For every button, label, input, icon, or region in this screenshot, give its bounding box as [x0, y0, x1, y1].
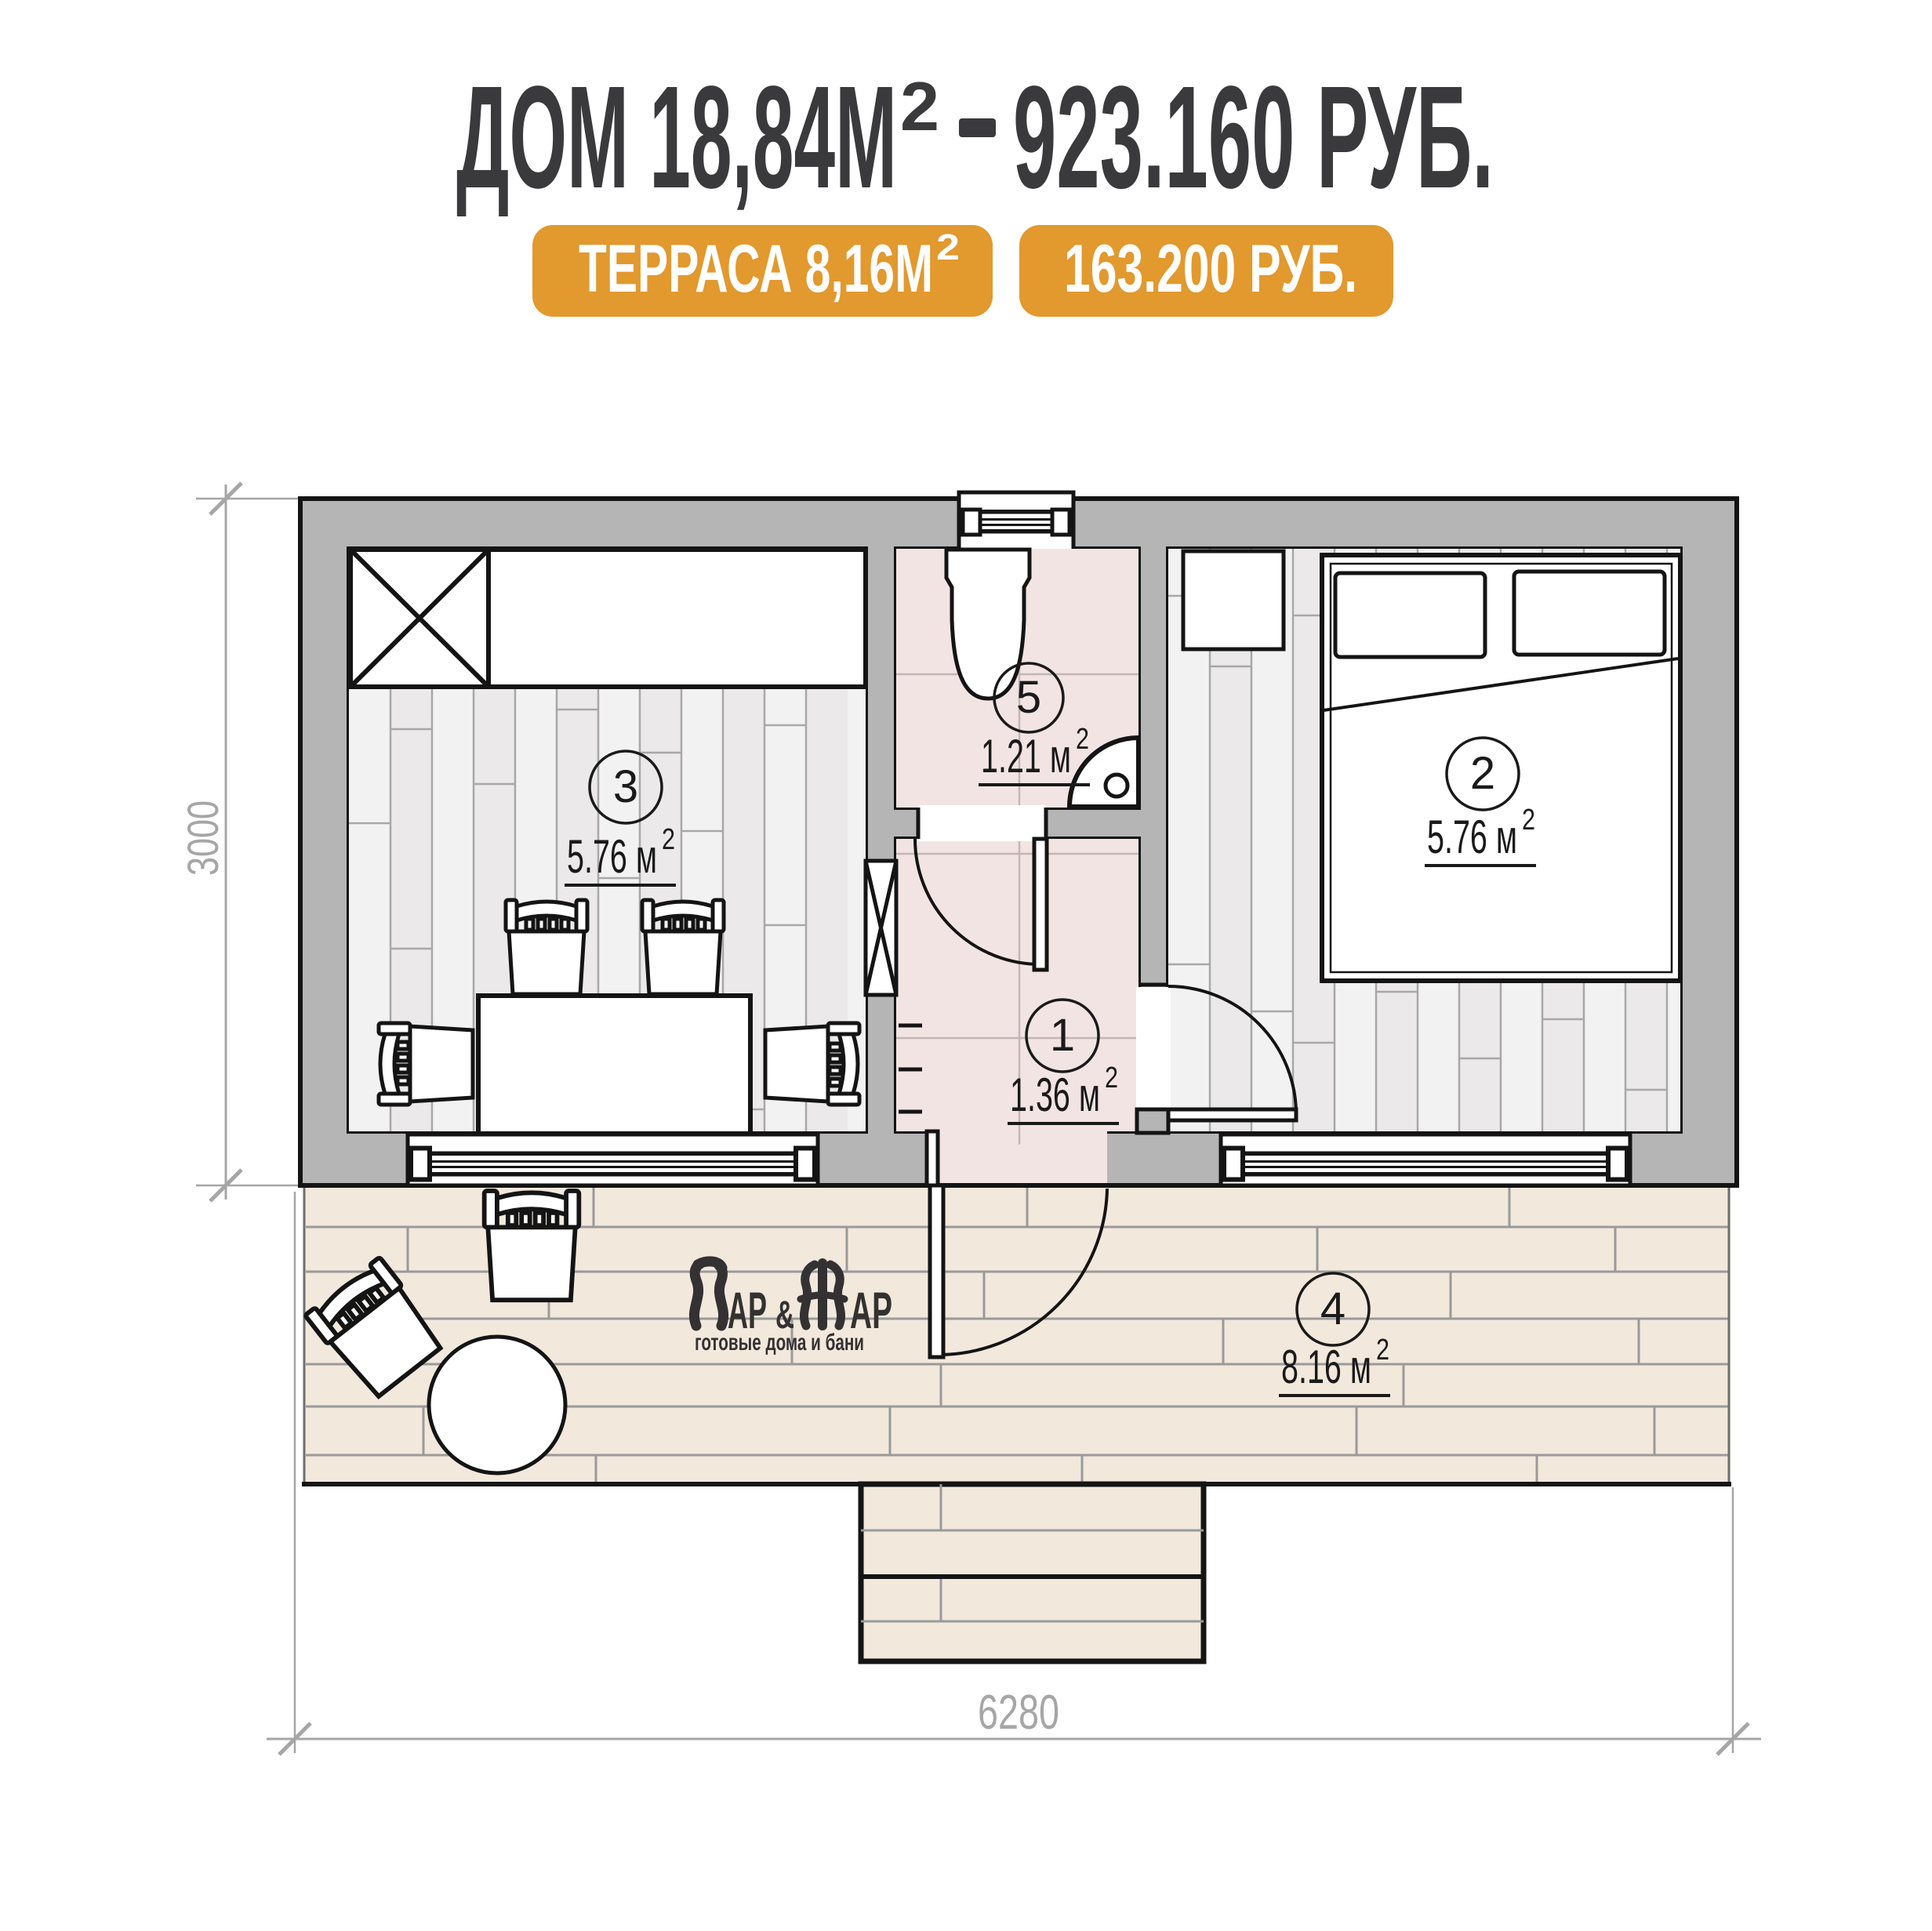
- svg-text:2: 2: [1522, 804, 1535, 837]
- svg-text:1: 1: [1050, 1010, 1075, 1061]
- svg-text:4: 4: [1320, 1283, 1345, 1334]
- svg-text:5.76 м: 5.76 м: [567, 830, 657, 883]
- svg-text:1.21 м: 1.21 м: [981, 730, 1071, 782]
- svg-text:2: 2: [1105, 1062, 1118, 1094]
- svg-text:2: 2: [936, 227, 960, 267]
- svg-text:923.160 РУБ.: 923.160 РУБ.: [1013, 56, 1494, 219]
- svg-text:ДОМ 18,84М: ДОМ 18,84М: [456, 56, 897, 219]
- svg-text:ТЕРРАСА 8,16М: ТЕРРАСА 8,16М: [579, 231, 933, 307]
- svg-text:8.16 м: 8.16 м: [1281, 1341, 1371, 1393]
- svg-text:2: 2: [1470, 748, 1495, 799]
- svg-text:2: 2: [900, 67, 939, 145]
- svg-text:6280: 6280: [978, 1686, 1059, 1740]
- svg-text:готовые дома и бани: готовые дома и бани: [695, 1330, 864, 1356]
- svg-text:2: 2: [1376, 1334, 1389, 1367]
- svg-text:2: 2: [1076, 723, 1089, 756]
- svg-text:163.200 РУБ.: 163.200 РУБ.: [1064, 231, 1357, 307]
- svg-text:5.76 м: 5.76 м: [1427, 811, 1517, 863]
- svg-text:5: 5: [1016, 672, 1041, 723]
- svg-text:2: 2: [662, 823, 675, 856]
- svg-text:3000: 3000: [178, 800, 227, 876]
- svg-text:1.36 м: 1.36 м: [1010, 1069, 1100, 1121]
- svg-text:3: 3: [613, 761, 638, 812]
